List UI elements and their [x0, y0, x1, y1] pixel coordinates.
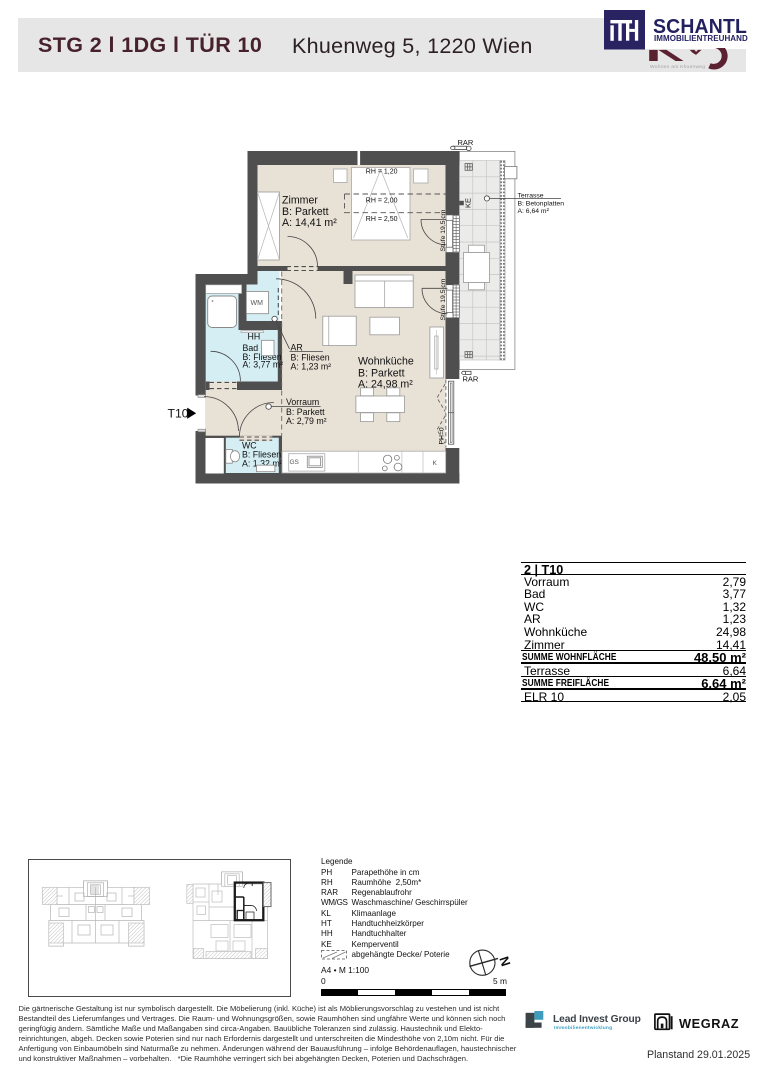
svg-text:Vorraum: Vorraum — [286, 397, 319, 407]
svg-text:N: N — [496, 955, 513, 969]
svg-text:B: Parkett: B: Parkett — [282, 206, 329, 218]
svg-text:HH: HH — [248, 332, 261, 342]
svg-text:B: Betonplatten: B: Betonplatten — [518, 200, 565, 207]
svg-text:Zimmer: Zimmer — [282, 194, 318, 206]
svg-text:RAR: RAR — [458, 138, 474, 147]
svg-text:Wohnküche: Wohnküche — [358, 355, 414, 367]
svg-text:K: K — [433, 460, 438, 467]
svg-text:AR: AR — [291, 342, 303, 352]
svg-text:T10: T10 — [168, 407, 189, 421]
svg-text:WM: WM — [251, 300, 264, 307]
svg-text:GS: GS — [290, 459, 300, 466]
svg-text:KE: KE — [464, 198, 473, 208]
svg-text:RAR: RAR — [463, 375, 479, 384]
svg-text:RH = 2,50: RH = 2,50 — [366, 216, 398, 223]
svg-text:Terrasse: Terrasse — [518, 192, 544, 199]
svg-text:A: 1,23 m²: A: 1,23 m² — [291, 361, 332, 371]
svg-text:PH=0: PH=0 — [439, 427, 446, 444]
svg-text:Stufe 19,5 cm: Stufe 19,5 cm — [440, 278, 447, 320]
svg-text:A: 2,79 m²: A: 2,79 m² — [286, 416, 327, 426]
svg-text:A: 3,77 m²: A: 3,77 m² — [243, 360, 284, 370]
svg-text:A: 14,41 m²: A: 14,41 m² — [282, 217, 337, 229]
svg-text:A: 6,64 m²: A: 6,64 m² — [518, 208, 550, 215]
svg-text:RH = 1,20: RH = 1,20 — [366, 168, 398, 175]
svg-text:Stufe 19,5 cm: Stufe 19,5 cm — [440, 209, 447, 251]
svg-text:RH = 2,00: RH = 2,00 — [366, 197, 398, 204]
